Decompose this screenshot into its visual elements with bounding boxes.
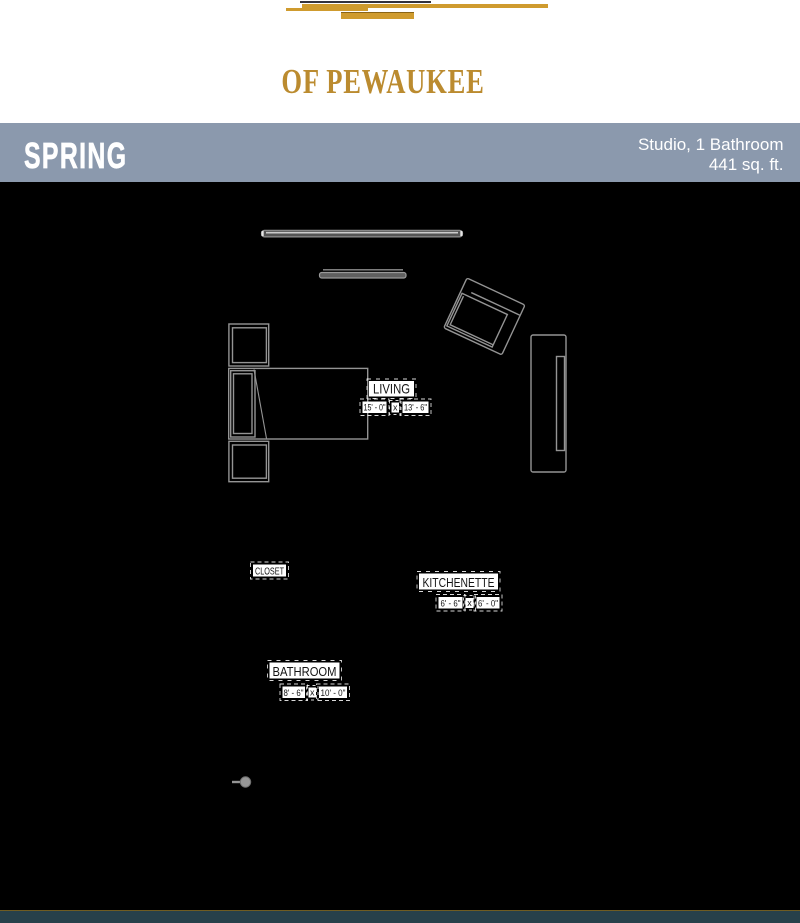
svg-text:6' - 0": 6' - 0": [478, 599, 498, 609]
svg-text:x: x: [467, 598, 472, 608]
svg-text:LIVING: LIVING: [373, 381, 410, 397]
svg-text:x: x: [310, 688, 315, 698]
svg-text:8' - 6": 8' - 6": [284, 688, 304, 698]
svg-text:BATHROOM: BATHROOM: [273, 664, 337, 679]
svg-text:15' - 0": 15' - 0": [364, 403, 386, 413]
svg-text:x: x: [393, 403, 398, 413]
svg-text:KITCHENETTE: KITCHENETTE: [423, 575, 495, 590]
svg-text:CLOSET: CLOSET: [255, 566, 284, 577]
svg-text:13' - 6": 13' - 6": [404, 403, 427, 413]
svg-text:6' - 6": 6' - 6": [441, 599, 461, 609]
svg-text:10' - 0": 10' - 0": [321, 688, 346, 698]
